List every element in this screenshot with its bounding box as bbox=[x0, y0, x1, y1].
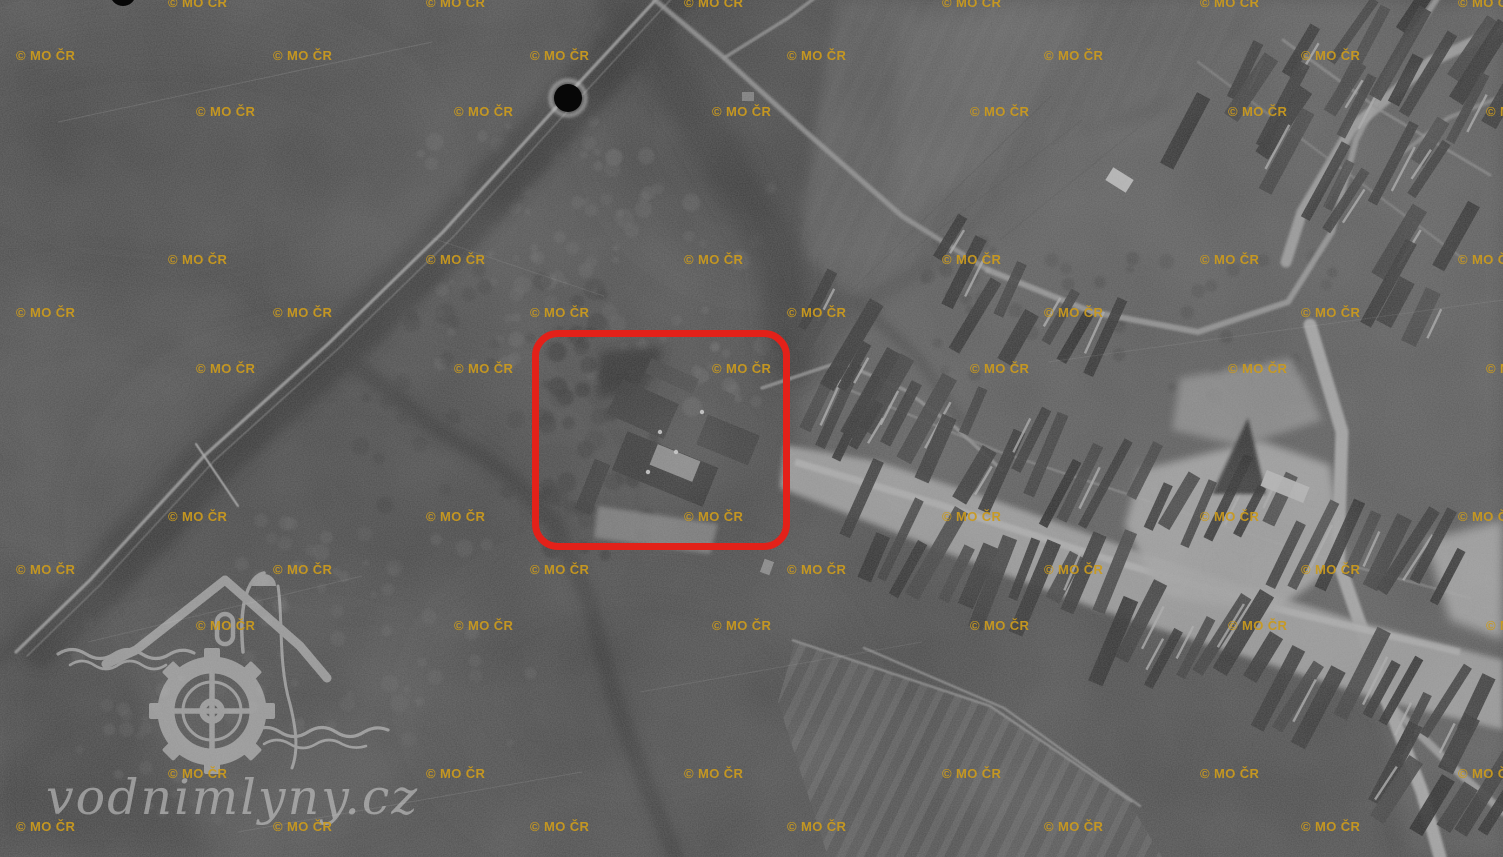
copyright-watermark: © MO ČR bbox=[1458, 0, 1503, 10]
copyright-watermark: © MO ČR bbox=[273, 49, 332, 63]
copyright-watermark: © MO ČR bbox=[168, 510, 227, 524]
copyright-watermark: © MO ČR bbox=[273, 820, 332, 834]
aerial-photo: vodnimlyny.cz © MO ČR© MO ČR© MO ČR© MO … bbox=[0, 0, 1503, 857]
copyright-watermark: © MO ČR bbox=[168, 0, 227, 10]
copyright-watermark: © MO ČR bbox=[426, 767, 485, 781]
copyright-watermark: © MO ČR bbox=[273, 563, 332, 577]
copyright-watermark: © MO ČR bbox=[684, 0, 743, 10]
copyright-watermark: © MO ČR bbox=[168, 253, 227, 267]
copyright-watermark: © MO ČR bbox=[454, 619, 513, 633]
copyright-watermark: © MO ČR bbox=[196, 362, 255, 376]
copyright-watermark: © MO ČR bbox=[454, 362, 513, 376]
copyright-watermark: © MO ČR bbox=[1458, 253, 1503, 267]
copyright-watermark: © MO ČR bbox=[426, 0, 485, 10]
copyright-watermark: © MO ČR bbox=[1228, 362, 1287, 376]
copyright-watermark: © MO ČR bbox=[684, 510, 743, 524]
copyright-watermark: © MO ČR bbox=[787, 306, 846, 320]
copyright-watermark: © MO ČR bbox=[1200, 253, 1259, 267]
copyright-watermark: © MO ČR bbox=[16, 49, 75, 63]
copyright-watermark: © MO ČR bbox=[942, 253, 1001, 267]
copyright-watermark: © MO ČR bbox=[16, 563, 75, 577]
copyright-watermark: © MO ČR bbox=[168, 767, 227, 781]
copyright-watermark: © MO ČR bbox=[684, 767, 743, 781]
copyright-watermark: © MO ČR bbox=[1301, 563, 1360, 577]
copyright-watermark: © MO ČR bbox=[1301, 306, 1360, 320]
copyright-watermark: © MO ČR bbox=[970, 105, 1029, 119]
copyright-watermark: © MO ČR bbox=[970, 362, 1029, 376]
copyright-watermark: © MO ČR bbox=[942, 0, 1001, 10]
copyright-watermark: © MO ČR bbox=[712, 619, 771, 633]
film-punch-hole bbox=[554, 84, 582, 112]
copyright-watermark: © MO ČR bbox=[787, 820, 846, 834]
copyright-watermark: © MO ČR bbox=[970, 619, 1029, 633]
copyright-watermark: © MO ČR bbox=[530, 820, 589, 834]
copyright-watermark: © MO ČR bbox=[1301, 820, 1360, 834]
copyright-watermark: © MO ČR bbox=[16, 306, 75, 320]
copyright-watermark: © MO ČR bbox=[1301, 49, 1360, 63]
copyright-watermark: © MO ČR bbox=[787, 49, 846, 63]
copyright-watermark: © MO ČR bbox=[530, 563, 589, 577]
copyright-watermark: © MO ČR bbox=[1458, 510, 1503, 524]
copyright-watermark: © MO ČR bbox=[16, 820, 75, 834]
copyright-watermark: © MO ČR bbox=[530, 49, 589, 63]
copyright-watermark: © MO ČR bbox=[712, 362, 771, 376]
copyright-watermark: © MO ČR bbox=[273, 306, 332, 320]
copyright-watermark: © MO ČR bbox=[530, 306, 589, 320]
copyright-watermark: © MO ČR bbox=[1044, 820, 1103, 834]
copyright-watermark: © MO ČR bbox=[942, 767, 1001, 781]
copyright-watermark: © MO ČR bbox=[1200, 0, 1259, 10]
grain-overlay bbox=[0, 0, 1503, 857]
copyright-watermark: © MO ČR bbox=[1200, 767, 1259, 781]
copyright-watermark: © MO ČR bbox=[454, 105, 513, 119]
copyright-watermark: © MO ČR bbox=[1486, 105, 1503, 119]
copyright-watermark: © MO ČR bbox=[1200, 510, 1259, 524]
copyright-watermark: © MO ČR bbox=[1228, 105, 1287, 119]
copyright-watermark: © MO ČR bbox=[1044, 49, 1103, 63]
aerial-scene-svg bbox=[0, 0, 1503, 857]
copyright-watermark: © MO ČR bbox=[196, 105, 255, 119]
copyright-watermark: © MO ČR bbox=[1458, 767, 1503, 781]
copyright-watermark: © MO ČR bbox=[1486, 619, 1503, 633]
copyright-watermark: © MO ČR bbox=[426, 510, 485, 524]
copyright-watermark: © MO ČR bbox=[426, 253, 485, 267]
copyright-watermark: © MO ČR bbox=[712, 105, 771, 119]
copyright-watermark: © MO ČR bbox=[1044, 306, 1103, 320]
copyright-watermark: © MO ČR bbox=[787, 563, 846, 577]
copyright-watermark: © MO ČR bbox=[684, 253, 743, 267]
copyright-watermark: © MO ČR bbox=[1228, 619, 1287, 633]
copyright-watermark: © MO ČR bbox=[942, 510, 1001, 524]
copyright-watermark: © MO ČR bbox=[196, 619, 255, 633]
copyright-watermark: © MO ČR bbox=[1486, 362, 1503, 376]
copyright-watermark: © MO ČR bbox=[1044, 563, 1103, 577]
